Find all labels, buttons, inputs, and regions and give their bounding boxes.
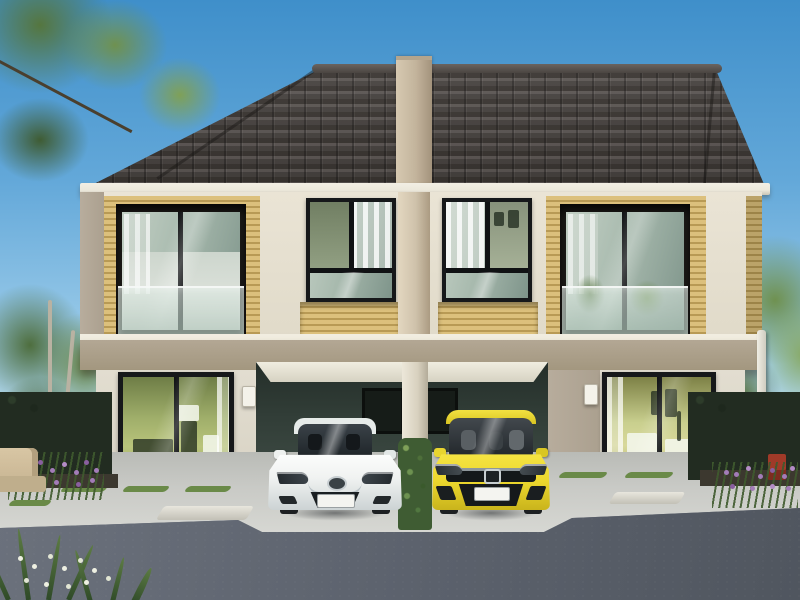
car-white-sedan <box>268 418 402 520</box>
slat-band-under-left-window <box>300 302 400 338</box>
grass-joint <box>7 500 52 506</box>
glass-reflection <box>446 272 528 298</box>
scene-townhouse-exterior <box>0 0 800 600</box>
headlight-right <box>361 472 394 484</box>
grass-joint <box>183 486 232 492</box>
fog-inlet-left <box>278 496 298 504</box>
headlight-left <box>434 464 463 475</box>
honda-badge <box>484 469 501 484</box>
curtain <box>352 202 392 272</box>
mazda-badge <box>327 476 347 491</box>
sofa-seat <box>0 476 46 492</box>
picture-frame <box>508 210 519 228</box>
grass-joint <box>121 486 170 492</box>
licence-plate <box>474 487 510 501</box>
window-mullion <box>485 202 490 268</box>
carport-centre-pillar <box>402 362 428 444</box>
doorbell-panel-right <box>584 384 598 405</box>
slat-corner-return-right <box>746 196 762 338</box>
curtain <box>446 202 486 272</box>
purple-flowers-right <box>724 470 729 475</box>
party-wall-firewall-cap <box>396 56 432 200</box>
corner-pier-left <box>80 192 104 352</box>
bedroom-window-left <box>306 198 396 302</box>
headlight-left <box>277 472 310 484</box>
fog-bezel-left <box>435 486 456 500</box>
white-crinum-flowers <box>18 556 23 561</box>
bedroom-window-right <box>442 198 532 302</box>
windshield <box>298 424 372 456</box>
glass-balustrade-right <box>562 286 688 338</box>
fog-bezel-right <box>525 486 546 500</box>
curb-stone <box>156 506 254 520</box>
window-glass <box>310 202 392 298</box>
balcony-recess-left <box>116 204 246 336</box>
window-glass <box>446 202 528 298</box>
picture-frame <box>494 212 504 226</box>
licence-plate <box>317 494 355 508</box>
doorbell-panel-left <box>242 386 256 407</box>
fog-inlet-right <box>372 496 392 504</box>
car-yellow-hatchback <box>432 410 550 520</box>
interior-shade <box>310 202 350 272</box>
windshield-glint <box>298 424 372 456</box>
roof-ridge-cap <box>312 64 722 73</box>
grass-joint <box>557 472 608 478</box>
curb-stone <box>609 492 686 504</box>
windshield <box>449 418 533 456</box>
grass-joint <box>623 472 674 478</box>
windshield-glint <box>449 418 533 456</box>
glass-balustrade-left <box>118 286 244 338</box>
headlight-right <box>518 464 547 475</box>
flower-stems <box>712 462 798 508</box>
window-mullion <box>349 202 354 268</box>
car-body <box>268 452 402 510</box>
car-body <box>432 452 550 510</box>
slat-band-under-right-window <box>438 302 538 338</box>
balcony-recess-right <box>560 204 690 336</box>
glass-reflection <box>310 272 392 298</box>
